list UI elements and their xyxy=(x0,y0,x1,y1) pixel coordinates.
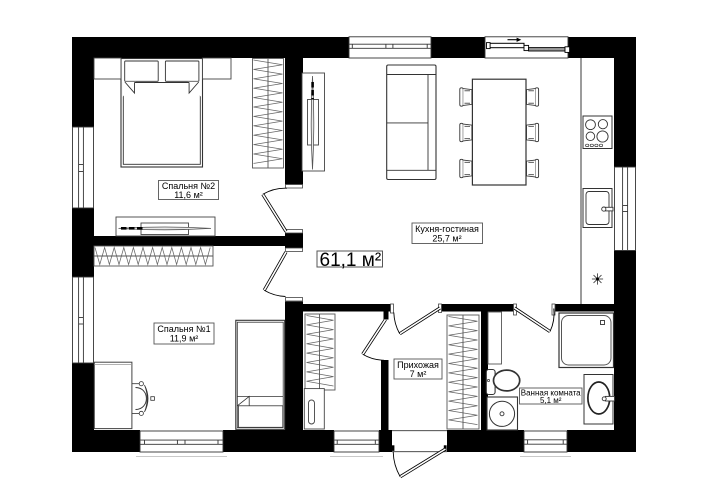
svg-text:7 м²: 7 м² xyxy=(410,369,427,379)
svg-text:5,1 м²: 5,1 м² xyxy=(540,396,562,405)
svg-text:Кухня-гостиная: Кухня-гостиная xyxy=(415,224,479,234)
svg-text:25,7 м²: 25,7 м² xyxy=(432,234,461,244)
svg-text:61,1 м²: 61,1 м² xyxy=(320,250,382,271)
svg-text:11,9 м²: 11,9 м² xyxy=(170,334,199,344)
svg-text:Спальня №1: Спальня №1 xyxy=(157,324,210,334)
svg-text:11,6 м²: 11,6 м² xyxy=(174,190,203,200)
